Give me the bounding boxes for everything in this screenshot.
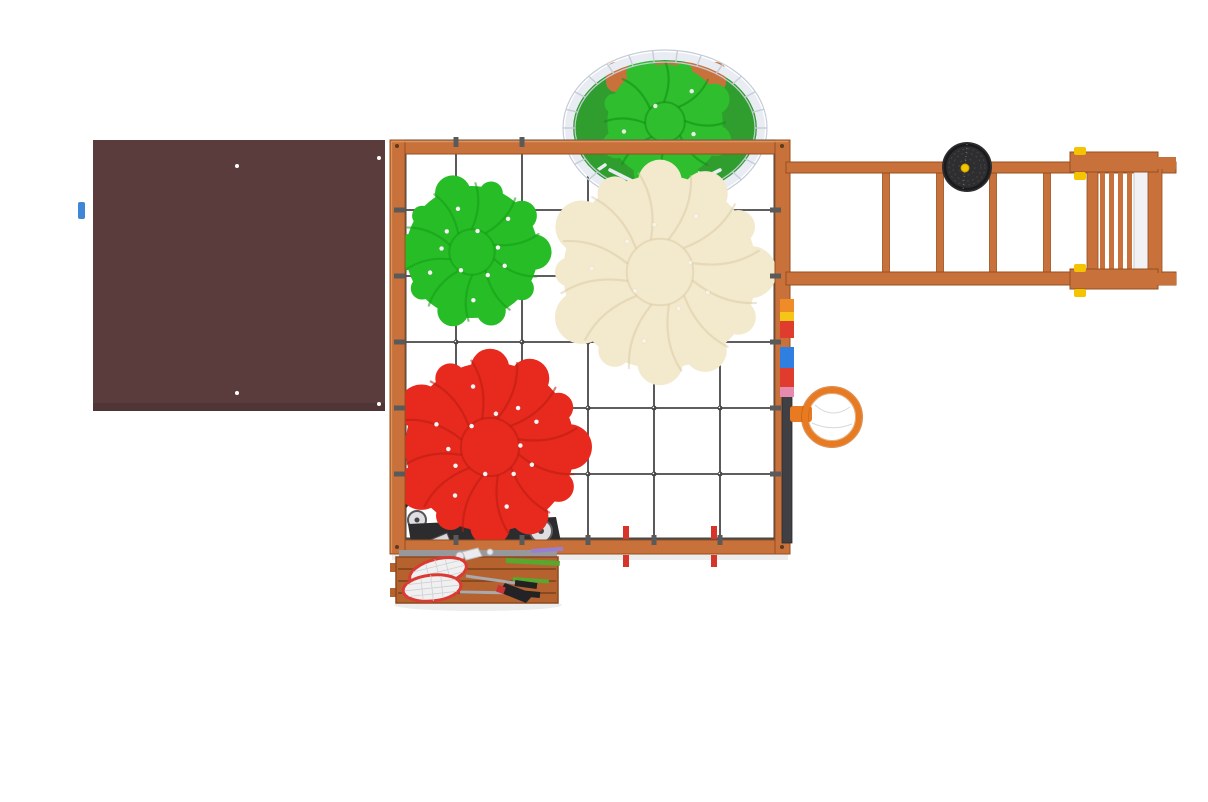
net-anchor bbox=[394, 208, 405, 213]
color-block bbox=[780, 312, 794, 321]
end-ladder-left-post bbox=[1087, 160, 1098, 280]
clamp-icon bbox=[1074, 172, 1086, 180]
end-ladder-slat bbox=[1100, 170, 1105, 274]
blue-edge-bit bbox=[78, 202, 85, 219]
tuft-button bbox=[530, 462, 535, 467]
tuft-button bbox=[689, 89, 694, 94]
net-anchor bbox=[770, 340, 781, 345]
net-anchor bbox=[394, 274, 405, 279]
tuft-button bbox=[625, 239, 630, 244]
clamp-icon bbox=[1074, 264, 1086, 272]
tuft-button bbox=[642, 339, 647, 344]
net-anchor bbox=[520, 137, 525, 147]
ladder-rung bbox=[990, 167, 997, 279]
cushion-disc bbox=[405, 362, 574, 531]
tuft-button bbox=[459, 268, 464, 273]
net-anchor bbox=[454, 137, 459, 147]
tuft-button bbox=[483, 472, 488, 477]
slide-edge bbox=[1134, 168, 1148, 276]
tuft-button bbox=[471, 384, 476, 389]
racket-grip bbox=[515, 583, 537, 586]
color-block-panel bbox=[780, 299, 794, 397]
red-peg bbox=[623, 526, 629, 539]
roof-screw-icon bbox=[377, 402, 381, 406]
red-peg bbox=[711, 555, 717, 567]
net-anchor bbox=[520, 535, 525, 545]
tuft-button bbox=[453, 493, 458, 498]
tuft-button bbox=[706, 290, 711, 295]
tuft-button bbox=[518, 443, 523, 448]
net-anchor bbox=[718, 535, 723, 545]
net-knot-highlight bbox=[521, 341, 523, 343]
end-ladder-right-post bbox=[1148, 164, 1162, 280]
roof-screw-icon bbox=[235, 164, 239, 168]
tuft-button bbox=[652, 222, 657, 227]
tuft-button bbox=[506, 217, 511, 222]
color-block bbox=[780, 368, 794, 387]
net-knot bbox=[586, 406, 591, 411]
tuft-button bbox=[496, 245, 501, 250]
roof-screw-icon bbox=[377, 156, 381, 160]
net-knot-highlight bbox=[455, 341, 457, 343]
tuft-button bbox=[516, 406, 521, 411]
tuft-button bbox=[589, 266, 594, 271]
tuft-button bbox=[691, 132, 696, 137]
tuft-button bbox=[428, 270, 433, 275]
tuft-button bbox=[633, 289, 638, 294]
color-block bbox=[780, 387, 794, 397]
red-peg bbox=[623, 555, 629, 567]
tuft-button bbox=[653, 104, 658, 109]
color-block bbox=[780, 347, 794, 368]
tuft-button bbox=[502, 264, 507, 269]
net-knot bbox=[718, 406, 723, 411]
tuft-button bbox=[494, 411, 499, 416]
net-knot-highlight bbox=[653, 473, 655, 475]
net-knot bbox=[454, 340, 459, 345]
net-anchor bbox=[454, 535, 459, 545]
render-canvas bbox=[0, 0, 1208, 802]
net-knot bbox=[652, 406, 657, 411]
clamp-icon bbox=[1074, 147, 1086, 155]
net-anchor bbox=[394, 340, 405, 345]
tuft-button bbox=[676, 306, 681, 311]
tuft-button bbox=[622, 129, 627, 134]
tuft-button bbox=[688, 260, 693, 265]
tuft-button bbox=[485, 273, 490, 278]
net-anchor bbox=[586, 535, 591, 545]
net-anchor bbox=[394, 472, 405, 477]
color-block bbox=[780, 321, 794, 338]
cushion-disc bbox=[563, 175, 756, 368]
net-knot-highlight bbox=[719, 407, 721, 409]
net-anchor bbox=[770, 274, 781, 279]
disc-swing bbox=[942, 142, 992, 192]
roof-panel bbox=[93, 140, 385, 411]
roof-screw-icon bbox=[235, 391, 239, 395]
net-anchor bbox=[394, 406, 405, 411]
tuft-button bbox=[694, 214, 699, 219]
ladder-rung bbox=[937, 167, 944, 279]
tuft-button bbox=[445, 229, 450, 234]
net-anchor bbox=[770, 208, 781, 213]
net-anchor bbox=[770, 472, 781, 477]
tuft-button bbox=[453, 463, 458, 468]
bolt-icon bbox=[395, 144, 399, 148]
color-block bbox=[780, 299, 794, 312]
tuft-button bbox=[446, 447, 451, 452]
tuft-button bbox=[456, 207, 461, 212]
tuft-button bbox=[439, 246, 444, 251]
end-ladder-slat bbox=[1118, 170, 1123, 274]
end-ladder-bottom-tab bbox=[1154, 273, 1176, 285]
playground-top-view bbox=[0, 0, 1208, 802]
bolt-icon bbox=[780, 545, 784, 549]
roof-surface bbox=[93, 140, 385, 411]
scooter-front-hub bbox=[415, 518, 420, 523]
net-knot bbox=[520, 340, 525, 345]
ladder-rung bbox=[1044, 167, 1051, 279]
end-ladder-slat bbox=[1109, 170, 1114, 274]
frame-rail-left bbox=[390, 140, 405, 554]
net-knot bbox=[652, 472, 657, 477]
ladder-rung bbox=[883, 167, 890, 279]
ball bbox=[487, 549, 493, 555]
bolt-icon bbox=[395, 545, 399, 549]
net-knot-highlight bbox=[587, 473, 589, 475]
tuft-button bbox=[504, 504, 509, 509]
roof-edge-shade bbox=[93, 403, 385, 411]
net-knot bbox=[586, 472, 591, 477]
disc-attachment bbox=[961, 164, 969, 172]
net-knot-highlight bbox=[719, 473, 721, 475]
storage-bench bbox=[390, 547, 563, 604]
net-anchor bbox=[652, 535, 657, 545]
net-anchor bbox=[770, 406, 781, 411]
tuft-button bbox=[511, 472, 516, 477]
tuft-button bbox=[475, 229, 480, 234]
tuft-button bbox=[469, 424, 474, 429]
net-knot bbox=[718, 472, 723, 477]
net-knot-highlight bbox=[653, 407, 655, 409]
red-peg bbox=[711, 526, 717, 539]
net-knot-highlight bbox=[587, 407, 589, 409]
tuft-button bbox=[534, 419, 539, 424]
clamp-icon bbox=[1074, 289, 1086, 297]
end-ladder-top-tab bbox=[1154, 157, 1176, 169]
end-ladder-slat bbox=[1127, 170, 1132, 274]
tuft-button bbox=[471, 298, 476, 303]
tuft-button bbox=[434, 422, 439, 427]
bolt-icon bbox=[780, 144, 784, 148]
